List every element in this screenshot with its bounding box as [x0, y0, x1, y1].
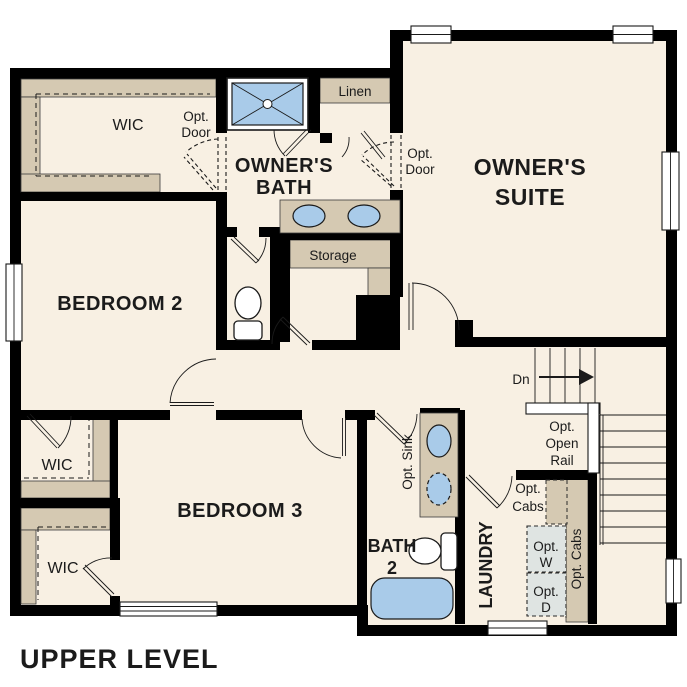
toilet-owners	[234, 287, 262, 340]
wic-top-label: WIC	[112, 117, 143, 134]
owners-suite-label: OWNER'S	[474, 154, 586, 180]
opt-cabs-laundry-label2: Cabs	[512, 499, 544, 514]
optional-sink-icon	[427, 473, 451, 505]
optional-cabinet	[546, 480, 567, 524]
laundry-label: LAUNDRY	[476, 521, 496, 608]
owners-suite-label2: SUITE	[495, 184, 565, 210]
bedroom3-label: BEDROOM 3	[177, 500, 303, 522]
sink-icon	[348, 205, 380, 227]
page-title: UPPER LEVEL	[20, 644, 219, 674]
stairs-down-label: Dn	[512, 372, 529, 387]
opt-washer-label2: W	[540, 555, 553, 570]
bath2-label: BATH	[368, 536, 417, 556]
shower-drain-icon	[263, 100, 272, 109]
opt-dryer-label2: D	[541, 600, 551, 615]
bathtub	[371, 578, 453, 619]
floor-plan-drawing: OWNER'S SUITE OWNER'S BATH BEDROOM 2 BED…	[0, 0, 687, 687]
opt-door-suite-label2: Door	[405, 162, 435, 177]
floor-plan: OWNER'S SUITE OWNER'S BATH BEDROOM 2 BED…	[0, 0, 687, 687]
owners-bath-vanity	[280, 200, 400, 233]
sink-icon	[427, 425, 451, 457]
storage-label: Storage	[309, 248, 356, 263]
opt-open-rail-label: Opt.	[549, 419, 575, 434]
linen-label: Linen	[338, 84, 371, 99]
opt-dryer-label: Opt.	[533, 584, 559, 599]
bath2-label2: 2	[387, 558, 397, 578]
opt-open-rail-label3: Rail	[550, 453, 573, 468]
wic-middle-label: WIC	[41, 457, 72, 474]
opt-sink-label: Opt. Sink	[400, 434, 415, 490]
bedroom2-label: BEDROOM 2	[57, 293, 183, 315]
owners-bath-label: OWNER'S	[235, 155, 333, 177]
opt-door-suite-label: Opt.	[407, 146, 433, 161]
opt-cabs-side-label: Opt. Cabs	[569, 528, 584, 589]
opt-cabs-laundry-label: Opt.	[515, 481, 541, 496]
owners-bath-label2: BATH	[256, 177, 312, 199]
wic-bottom-label: WIC	[47, 560, 78, 577]
opt-open-rail-label2: Open	[545, 436, 578, 451]
opt-washer-label: Opt.	[533, 539, 559, 554]
bath2-vanity	[420, 413, 458, 517]
shower	[227, 78, 308, 130]
opt-door-wic-label: Opt.	[183, 109, 209, 124]
sink-icon	[293, 205, 325, 227]
opt-door-wic-label2: Door	[181, 125, 211, 140]
